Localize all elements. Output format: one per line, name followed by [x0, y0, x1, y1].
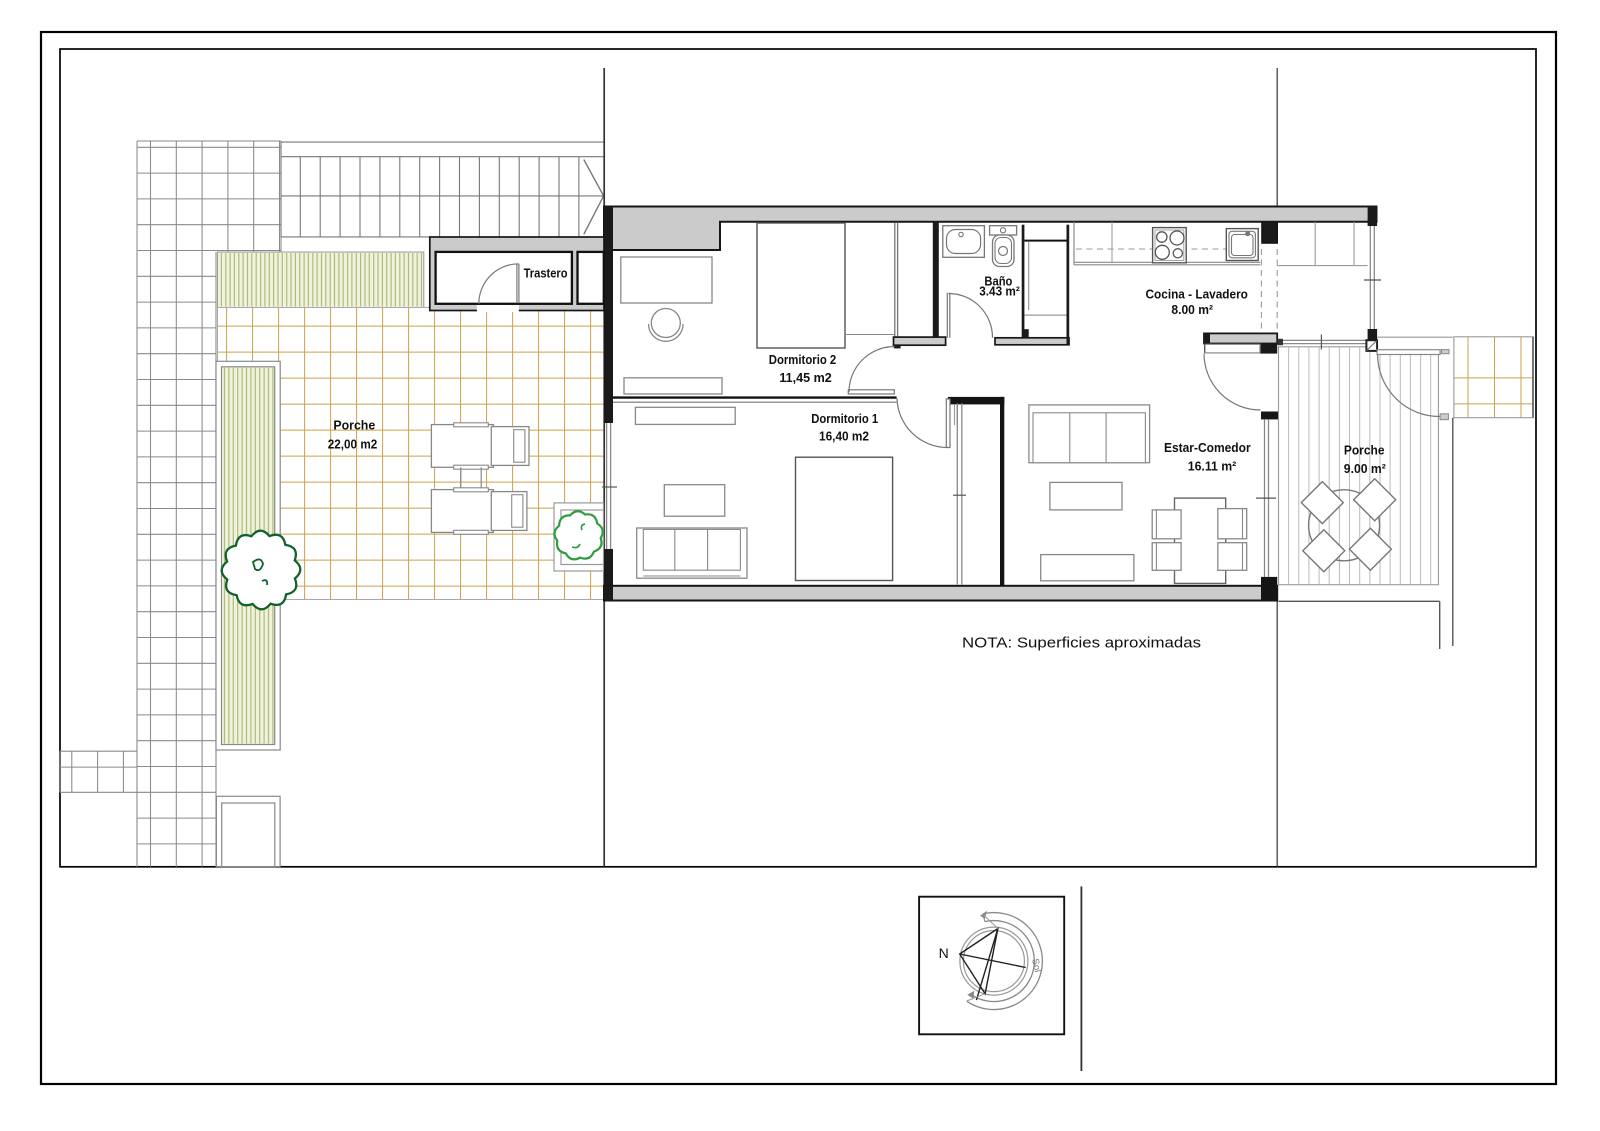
svg-text:NOTA: Superficies aproximadas: NOTA: Superficies aproximadas [962, 635, 1201, 652]
svg-text:9.00 m²: 9.00 m² [1344, 462, 1386, 476]
svg-text:11,45 m2: 11,45 m2 [779, 371, 831, 385]
svg-text:16,40 m2: 16,40 m2 [819, 430, 869, 444]
svg-text:16.11 m²: 16.11 m² [1188, 459, 1237, 473]
svg-text:3.43 m²: 3.43 m² [979, 285, 1020, 299]
svg-text:Porche: Porche [333, 419, 375, 433]
svg-text:Estar-Comedor: Estar-Comedor [1164, 441, 1251, 455]
svg-text:Porche: Porche [1344, 444, 1385, 458]
svg-text:Dormitorio 2: Dormitorio 2 [769, 353, 837, 367]
svg-text:Dormitorio 1: Dormitorio 1 [811, 412, 878, 426]
svg-text:Cocina - Lavadero: Cocina - Lavadero [1146, 287, 1249, 301]
svg-text:Trastero: Trastero [524, 266, 568, 280]
svg-text:N: N [939, 945, 949, 961]
svg-text:8.00 m²: 8.00 m² [1171, 303, 1213, 317]
svg-text:22,00 m2: 22,00 m2 [328, 437, 378, 451]
